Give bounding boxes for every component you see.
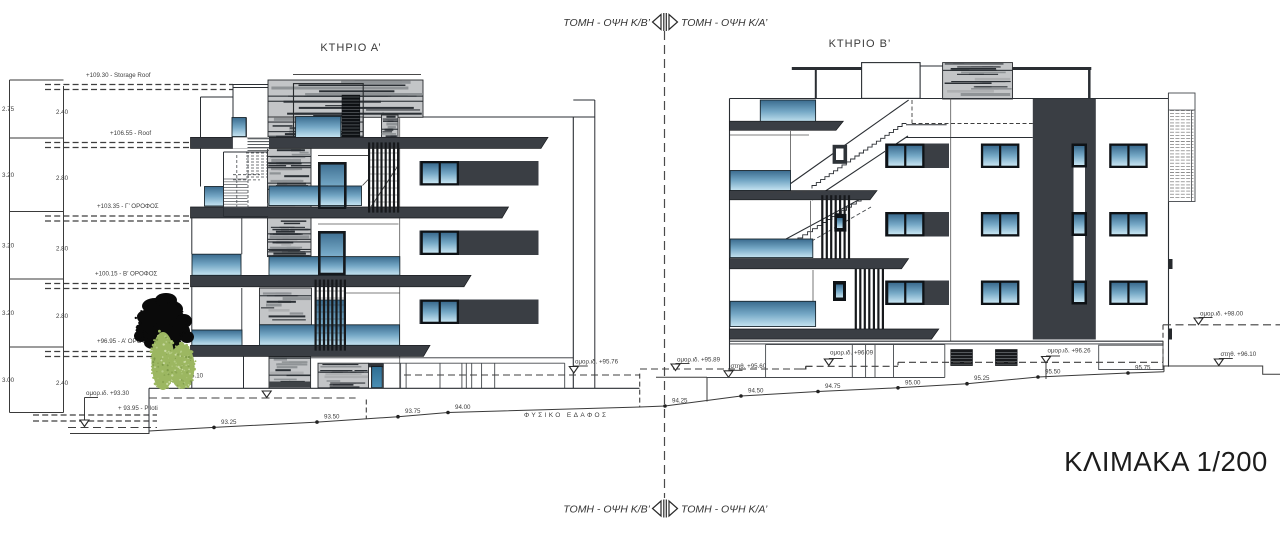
svg-text:ΚΤΗΡΙΟ Β’: ΚΤΗΡΙΟ Β’ xyxy=(829,38,892,50)
svg-text:2.40: 2.40 xyxy=(56,109,69,116)
svg-text:στηθ. +95.60: στηθ. +95.60 xyxy=(731,363,767,370)
svg-text:94.50: 94.50 xyxy=(748,388,764,395)
svg-text:2.80: 2.80 xyxy=(56,175,69,182)
svg-text:93.25: 93.25 xyxy=(221,419,237,426)
svg-text:ομορ.ιδ. +95.89: ομορ.ιδ. +95.89 xyxy=(677,357,721,364)
svg-text:ΤΟΜΗ - ΟΨΗ Κ/Β’: ΤΟΜΗ - ΟΨΗ Κ/Β’ xyxy=(563,504,650,516)
svg-text:3.20: 3.20 xyxy=(2,310,15,317)
svg-text:στηθ. +96.10: στηθ. +96.10 xyxy=(1221,351,1257,358)
svg-text:+100.15 - Β’ ΟΡΟΦΟΣ: +100.15 - Β’ ΟΡΟΦΟΣ xyxy=(95,271,158,278)
svg-text:95.25: 95.25 xyxy=(974,375,990,382)
svg-text:3.20: 3.20 xyxy=(2,172,15,179)
svg-text:94.75: 94.75 xyxy=(825,383,841,390)
svg-text:94.25: 94.25 xyxy=(672,398,688,405)
svg-text:ομορ.ιδ. +96.26: ομορ.ιδ. +96.26 xyxy=(1048,348,1092,355)
svg-text:2.80: 2.80 xyxy=(56,245,69,252)
svg-text:ομορ.ιδ. +95.76: ομορ.ιδ. +95.76 xyxy=(575,359,619,366)
svg-text:ΚΛΙΜΑΚΑ 1/200: ΚΛΙΜΑΚΑ 1/200 xyxy=(1064,446,1268,477)
svg-text:3.20: 3.20 xyxy=(2,242,15,249)
svg-text:+ 93.95 - Piloti: + 93.95 - Piloti xyxy=(118,405,158,412)
svg-text:2.40: 2.40 xyxy=(56,380,69,387)
svg-text:93.50: 93.50 xyxy=(324,414,340,421)
svg-text:2.75: 2.75 xyxy=(2,106,15,113)
svg-text:ΤΟΜΗ - ΟΨΗ Κ/Α’: ΤΟΜΗ - ΟΨΗ Κ/Α’ xyxy=(681,17,768,29)
svg-text:95.00: 95.00 xyxy=(905,379,921,386)
svg-text:3.00: 3.00 xyxy=(2,377,15,384)
svg-text:+109.30 - Storage Roof: +109.30 - Storage Roof xyxy=(86,72,151,79)
svg-text:+103.35 - Γ’ ΟΡΟΦΟΣ: +103.35 - Γ’ ΟΡΟΦΟΣ xyxy=(97,203,159,210)
svg-text:94.00: 94.00 xyxy=(455,404,471,411)
svg-text:+106.55 - Roof: +106.55 - Roof xyxy=(110,130,151,137)
svg-text:95.75: 95.75 xyxy=(1135,365,1151,372)
svg-text:93.75: 93.75 xyxy=(405,408,421,415)
svg-text:ΤΟΜΗ - ΟΨΗ Κ/Β’: ΤΟΜΗ - ΟΨΗ Κ/Β’ xyxy=(563,17,650,29)
svg-text:ΤΟΜΗ - ΟΨΗ Κ/Α’: ΤΟΜΗ - ΟΨΗ Κ/Α’ xyxy=(681,504,768,516)
svg-text:ομορ.ιδ. +93.30: ομορ.ιδ. +93.30 xyxy=(86,390,130,397)
svg-text:ΦΥΣΙΚΟ ΕΔΑΦΟΣ: ΦΥΣΙΚΟ ΕΔΑΦΟΣ xyxy=(524,412,608,419)
svg-text:95.50: 95.50 xyxy=(1045,369,1061,376)
svg-text:ομορ.ιδ. +98.00: ομορ.ιδ. +98.00 xyxy=(1200,311,1244,318)
svg-text:2.80: 2.80 xyxy=(56,313,69,320)
svg-text:ομορ.ιδ. +96.09: ομορ.ιδ. +96.09 xyxy=(830,350,874,357)
svg-text:ΚΤΗΡΙΟ Α’: ΚΤΗΡΙΟ Α’ xyxy=(320,42,381,54)
